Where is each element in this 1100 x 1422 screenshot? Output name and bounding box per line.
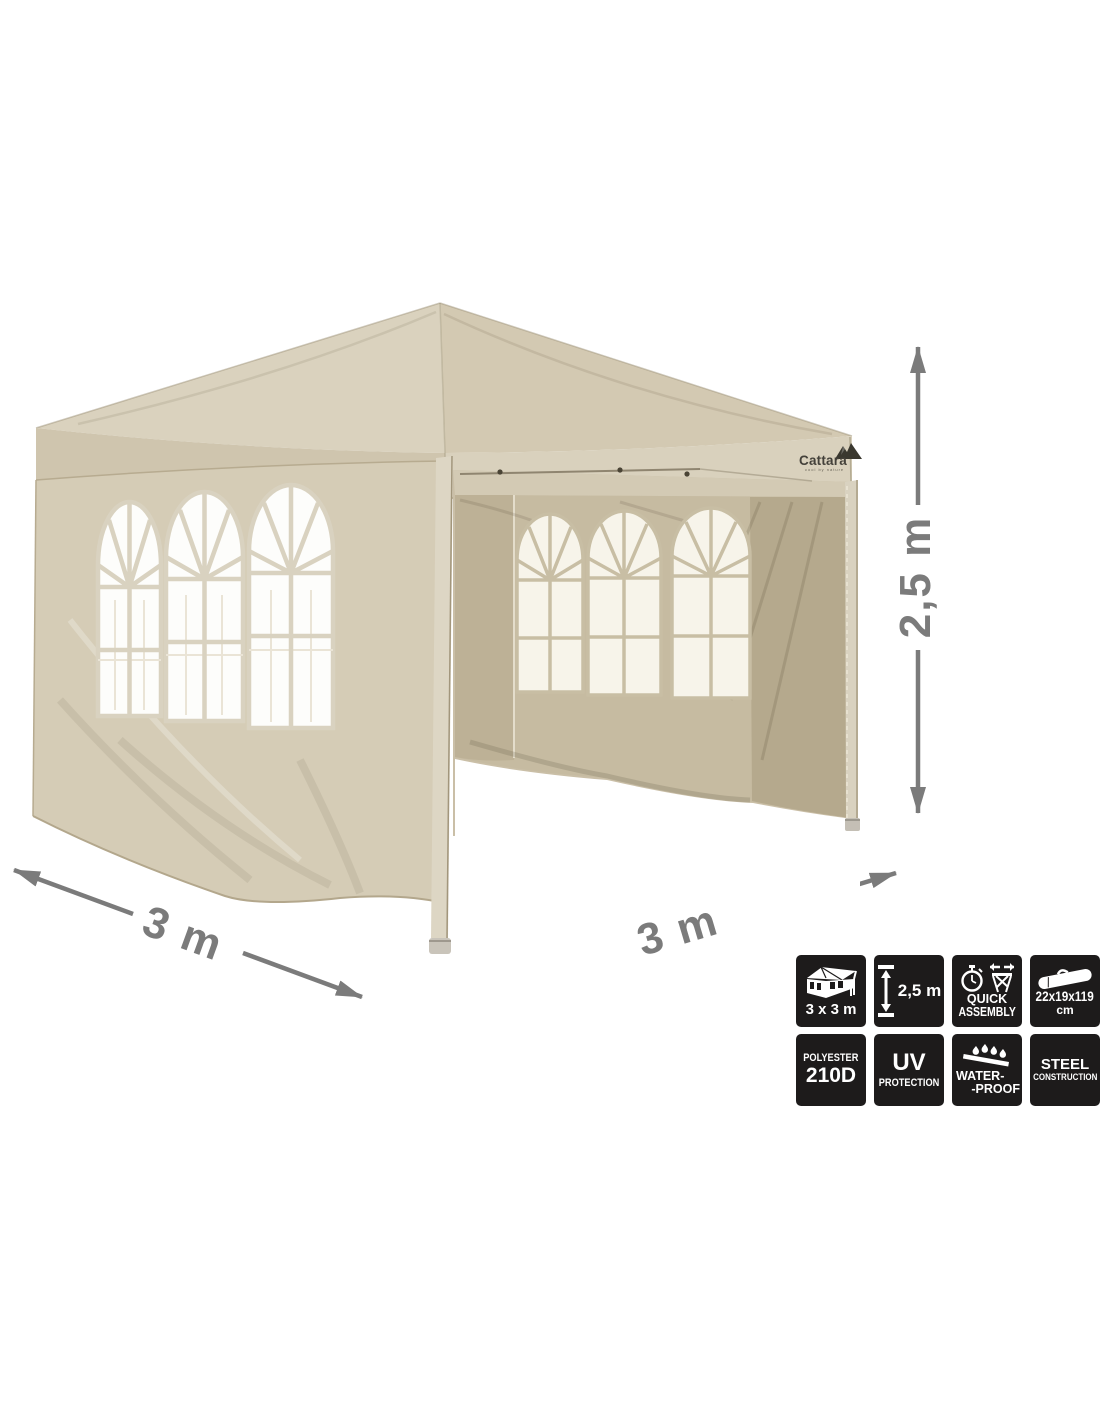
brand-name: Cattara <box>799 453 847 468</box>
badge-pack-size: 22x19x119 cm <box>1030 955 1100 1027</box>
water-drops-icon <box>963 1044 1011 1070</box>
badge-steel: STEEL CONSTRUCTION <box>1030 1034 1100 1106</box>
badge-uv-label: UV <box>892 1051 925 1076</box>
carry-bag-icon <box>1035 965 1095 989</box>
badge-waterproof: WATER- -PROOF <box>952 1034 1022 1106</box>
badge-size-label: 3 x 3 m <box>806 1002 857 1018</box>
gazebo-illustration <box>0 0 1100 1422</box>
product-image: 3 m 3 m 2,5 m Cattara cool by nature 3 x… <box>0 0 1100 1422</box>
right-front-leg <box>845 480 860 831</box>
badge-size: 3 x 3 m <box>796 955 866 1027</box>
badge-packsize-label: 22x19x119 <box>1036 989 1094 1004</box>
badge-polyester: POLYESTER 210D <box>796 1034 866 1106</box>
stopwatch-icon <box>959 964 985 992</box>
height-dimension-label: 2,5 m <box>891 516 941 639</box>
brand-logo: Cattara cool by nature <box>799 444 861 476</box>
badge-packsize-unit: cm <box>1056 1004 1073 1016</box>
badge-polyester-value: 210D <box>806 1065 856 1087</box>
badge-assembly-label: ASSEMBLY <box>958 1006 1015 1019</box>
badge-steel-label: STEEL <box>1041 1057 1089 1073</box>
badge-construction-label: CONSTRUCTION <box>1033 1073 1097 1083</box>
brand-tagline: cool by nature <box>805 467 844 472</box>
badge-height: 2,5 m <box>874 955 944 1027</box>
height-arrow-icon <box>877 964 895 1018</box>
frame-icon <box>988 963 1016 993</box>
left-wall-windows <box>98 485 333 728</box>
badge-height-label: 2,5 m <box>898 982 941 1000</box>
badge-polyester-label: POLYESTER <box>803 1053 858 1064</box>
back-wall-windows <box>517 508 750 698</box>
left-side-wall <box>33 461 445 903</box>
gazebo-icon <box>802 964 860 1000</box>
badge-uv-sublabel: PROTECTION <box>879 1078 940 1089</box>
badge-proof-label: -PROOF <box>971 1083 1020 1096</box>
badge-uv: UV PROTECTION <box>874 1034 944 1106</box>
badge-quick-assembly: QUICK ASSEMBLY <box>952 955 1022 1027</box>
